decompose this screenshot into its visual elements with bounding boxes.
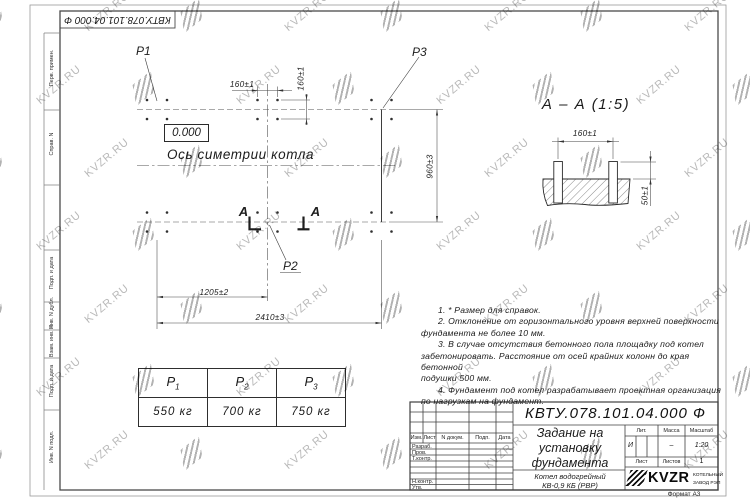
title-block-title-line3: фундамента (515, 456, 625, 470)
load-leaders (145, 57, 419, 273)
note-line: подушки 500 мм. (421, 373, 721, 384)
note-line: 1. * Размер для справок. (421, 305, 721, 316)
load-table-value: 550 кг (139, 398, 208, 427)
tb-col-data: Дата (496, 435, 513, 441)
load-label-p3: P3 (412, 45, 427, 59)
tb-mass-label: Масса (658, 428, 685, 434)
tb-scale-label: Масштаб (685, 428, 718, 434)
load-table-value: 750 кг (277, 398, 346, 427)
section-cut-marks (250, 217, 310, 230)
note-line: 3. В случае отсутствия бетонного пола пл… (421, 339, 721, 350)
drawing-sheet: КВТУ.078.101.04.000 Ф Перв. примен. Спра… (0, 0, 750, 500)
title-block-product-line2: КВ-0,9 КБ (РВР) (515, 481, 625, 490)
section-view-title: А – А (1:5) (516, 96, 656, 113)
dim-160-top: 160±1 (217, 80, 267, 89)
load-table-header: P2 (208, 369, 277, 398)
section-view (543, 138, 656, 207)
margin-label-sprav-n: Справ. N (49, 104, 55, 184)
dim-960: 960±3 (426, 147, 435, 187)
kvzr-logo-text: KVZR (648, 470, 689, 486)
title-block-title-line2: установку (515, 441, 625, 455)
notes-block: 1. * Размер для справок. 2. Отклонение о… (421, 305, 721, 408)
kvzr-logo-subtext-line2: ЗАВОД РЭП (693, 480, 720, 487)
stamp-doc-number-flipped: КВТУ.078.101.04.000 Ф (60, 11, 175, 28)
section-letter-right: А (308, 204, 323, 219)
section-dim-160: 160±1 (560, 129, 610, 138)
boiler-symmetry-axis-label: Ось симетрии котла (167, 147, 314, 162)
dim-160-side: 160±1 (297, 59, 306, 99)
plan-view (137, 57, 443, 329)
tb-sheet-label: Лист (625, 459, 658, 465)
load-label-p1: P1 (136, 44, 151, 58)
section-dim-50: 50±1 (641, 176, 650, 216)
note-line: забетонировать. Расстояние от осей крайн… (421, 351, 721, 374)
dim-1205: 1205±2 (189, 288, 239, 297)
note-line: 4. Фундамент под котел разрабатывает про… (421, 385, 721, 396)
margin-label-perv-primen: Перв. примен. (49, 28, 55, 108)
load-label-p2: P2 (283, 259, 298, 273)
tb-mass-value: – (658, 442, 685, 449)
drawing-linework (0, 0, 750, 500)
load-table-value: 700 кг (208, 398, 277, 427)
note-line: фундамента не более 10 мм. (421, 328, 721, 339)
section-letter-left: А (236, 204, 251, 219)
tb-col-izm: Изм. (410, 435, 423, 441)
tb-row-tkontr: Т.контр. (412, 456, 432, 462)
tb-sheets-value: 1 (685, 458, 718, 465)
tb-col-podp: Подп. (469, 435, 496, 441)
dim-2410: 2410±3 (245, 313, 295, 322)
title-block-title-line1: Задание на (515, 426, 625, 440)
tb-row-utv: Утв. (412, 485, 422, 491)
tb-col-doc: N докум. (436, 435, 469, 441)
tb-col-list: Лист (423, 435, 436, 441)
tb-scale-value: 1:20 (685, 442, 718, 449)
title-block-doc-number: КВТУ.078.101.04.000 Ф (513, 405, 718, 422)
load-table-header: P1 (139, 369, 208, 398)
load-table: P1 P2 P3 550 кг 700 кг 750 кг (138, 368, 346, 427)
elevation-mark: 0.000 (164, 124, 209, 142)
tb-lit-value: И (625, 442, 636, 449)
margin-label-inv-podl: Инв. N подл. (49, 407, 55, 487)
title-block-product-line1: Котел водогрейный (515, 472, 625, 481)
tb-lit-label: Лит. (625, 428, 658, 434)
sheet-frame (30, 5, 726, 496)
format-label: Формат А3 (654, 491, 714, 498)
tb-sheets-label: Листов (658, 459, 685, 465)
note-line: 2. Отклонение от горизонтального уровня … (421, 316, 721, 327)
load-table-header: P3 (277, 369, 346, 398)
kvzr-logo-subtext-line1: КОТЕЛЬНЫЙ (693, 472, 723, 479)
